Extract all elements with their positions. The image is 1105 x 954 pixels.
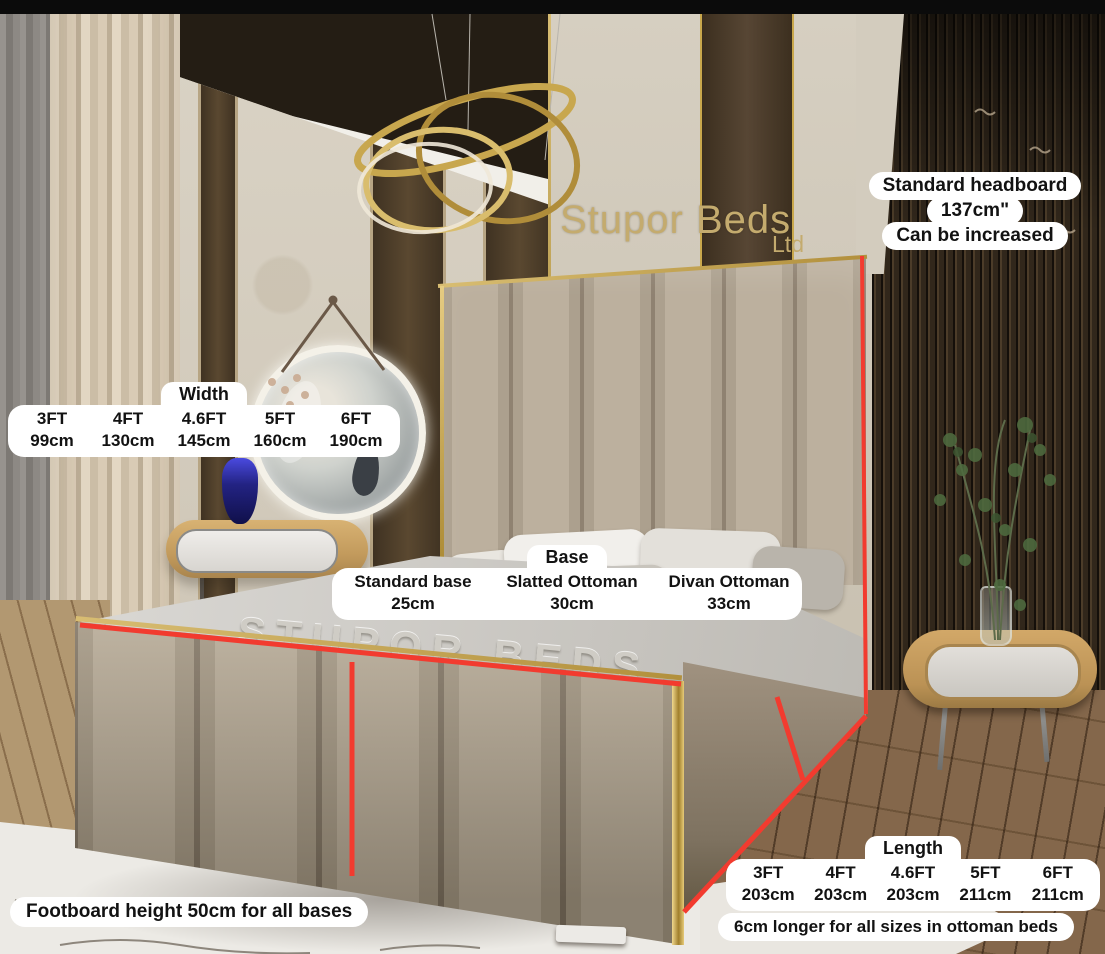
base-option: Slatted Ottoman	[488, 571, 656, 593]
width-value: 145cm	[166, 430, 242, 452]
nightstand-drawer	[925, 644, 1081, 700]
length-value: 203cm	[877, 884, 949, 906]
footboard-note: Footboard height 50cm for all bases	[10, 897, 368, 927]
base-table-values: 25cm 30cm 33cm	[338, 593, 796, 615]
width-table: Width 3FT 4FT 4.6FT 5FT 6FT 99cm 130cm 1…	[8, 382, 400, 457]
width-table-values: 99cm 130cm 145cm 160cm 190cm	[14, 430, 394, 452]
ottoman-note: 6cm longer for all sizes in ottoman beds	[718, 913, 1074, 941]
width-size: 6FT	[318, 408, 394, 430]
base-option: Divan Ottoman	[656, 571, 802, 593]
width-size: 4.6FT	[166, 408, 242, 430]
headboard-note-line3: Can be increased	[882, 222, 1067, 250]
width-value: 99cm	[14, 430, 90, 452]
base-table-title: Base	[527, 545, 606, 568]
base-value: 25cm	[338, 593, 488, 615]
length-size: 4FT	[804, 862, 876, 884]
headboard-note-line2: 137cm"	[927, 197, 1023, 225]
length-size: 5FT	[949, 862, 1021, 884]
length-table-body: 3FT 4FT 4.6FT 5FT 6FT 203cm 203cm 203cm …	[726, 859, 1100, 911]
width-size: 5FT	[242, 408, 318, 430]
product-image: Stupor Beds Ltd STUPOR BEDS	[0, 0, 1105, 954]
headboard-note: Standard headboard 137cm" Can be increas…	[845, 175, 1105, 250]
base-option: Standard base	[338, 571, 488, 593]
base-value: 30cm	[488, 593, 656, 615]
brand-sign: Stupor Beds Ltd	[560, 198, 810, 258]
length-value: 203cm	[732, 884, 804, 906]
length-size: 3FT	[732, 862, 804, 884]
length-table-sizes: 3FT 4FT 4.6FT 5FT 6FT	[732, 862, 1094, 884]
length-table: Length 3FT 4FT 4.6FT 5FT 6FT 203cm 203cm…	[726, 836, 1100, 911]
base-table: Base Standard base Slatted Ottoman Divan…	[332, 545, 802, 620]
width-size: 3FT	[14, 408, 90, 430]
glass-vase	[980, 586, 1012, 646]
base-value: 33cm	[656, 593, 802, 615]
length-table-title: Length	[865, 836, 961, 859]
top-letterbox-bar	[0, 0, 1105, 14]
headboard-note-line1: Standard headboard	[869, 172, 1082, 200]
width-table-body: 3FT 4FT 4.6FT 5FT 6FT 99cm 130cm 145cm 1…	[8, 405, 400, 457]
bed-leg	[556, 925, 627, 944]
base-table-body: Standard base Slatted Ottoman Divan Otto…	[332, 568, 802, 620]
headboard-gold-trim	[440, 286, 444, 584]
length-value: 203cm	[804, 884, 876, 906]
length-size: 6FT	[1022, 862, 1094, 884]
length-value: 211cm	[1022, 884, 1094, 906]
footboard-gold-trim-right	[672, 681, 684, 945]
length-table-values: 203cm 203cm 203cm 211cm 211cm	[732, 884, 1094, 906]
width-value: 160cm	[242, 430, 318, 452]
width-value: 130cm	[90, 430, 166, 452]
base-table-options: Standard base Slatted Ottoman Divan Otto…	[338, 571, 796, 593]
length-size: 4.6FT	[877, 862, 949, 884]
width-table-title: Width	[161, 382, 247, 405]
width-size: 4FT	[90, 408, 166, 430]
width-value: 190cm	[318, 430, 394, 452]
console-drawer	[176, 529, 338, 573]
length-value: 211cm	[949, 884, 1021, 906]
width-table-sizes: 3FT 4FT 4.6FT 5FT 6FT	[14, 408, 394, 430]
